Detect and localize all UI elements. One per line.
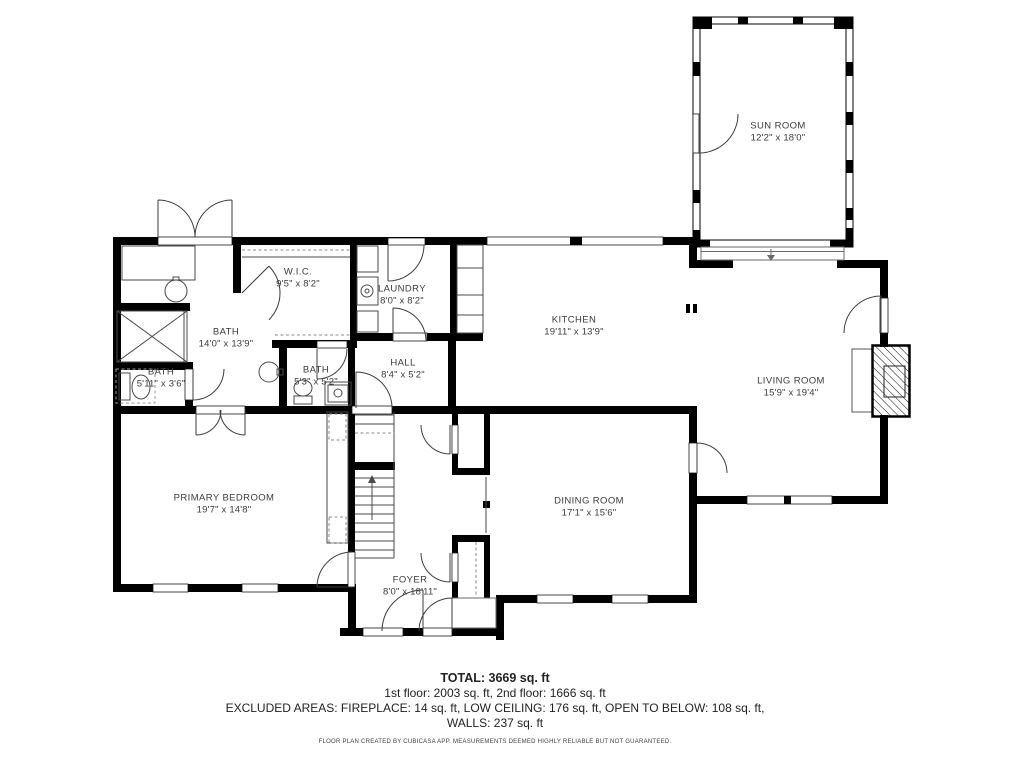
room-label-hall: HALL 8'4" x 5'2" bbox=[381, 358, 425, 381]
entry-stoop bbox=[452, 598, 496, 628]
room-label-small-bath: BATH 5'11" x 3'6" bbox=[137, 367, 186, 390]
room-label-dining-room: DINING ROOM 17'1" x 15'6" bbox=[554, 496, 624, 519]
laundry-cabinet bbox=[357, 311, 378, 332]
area-summary: TOTAL: 3669 sq. ft 1st floor: 2003 sq. f… bbox=[0, 671, 990, 745]
vanity-counter bbox=[122, 246, 195, 280]
stairs bbox=[355, 412, 394, 558]
foyer-closet1-door-arc bbox=[421, 425, 450, 454]
walls-area: WALLS: 237 sq. ft bbox=[0, 716, 990, 731]
room-label-living-room: LIVING ROOM 15'9" x 19'4" bbox=[757, 376, 825, 399]
room-label-sun-room: SUN ROOM 12'2" x 18'0" bbox=[750, 121, 805, 144]
room-label-wic: W.I.C. 9'5" x 8'2" bbox=[276, 267, 320, 290]
bedroom-door-arc bbox=[317, 552, 352, 587]
room-label-laundry: LAUNDRY 8'0" x 8'2" bbox=[378, 284, 426, 307]
sink-icon bbox=[165, 280, 187, 302]
bedroom-closet bbox=[327, 412, 348, 543]
floor-plan-page: SUN ROOM 12'2" x 18'0" W.I.C. 9'5" x 8'2… bbox=[0, 0, 1024, 768]
room-label-primary-bedroom: PRIMARY BEDROOM 19'7" x 14'8" bbox=[174, 493, 275, 516]
dining-door-arc bbox=[697, 443, 727, 473]
disclaimer: FLOOR PLAN CREATED BY CUBICASA APP. MEAS… bbox=[0, 739, 990, 745]
room-label-primary-bath: BATH 14'0" x 13'9" bbox=[199, 327, 254, 350]
patio-french-door-left bbox=[158, 200, 195, 237]
window-mullions bbox=[483, 237, 791, 508]
laundry-door-arc bbox=[388, 245, 424, 281]
laundry-cabinet bbox=[357, 246, 378, 272]
kitchen-cabinets bbox=[457, 245, 483, 333]
room-label-kitchen: KITCHEN 19'11" x 13'9" bbox=[544, 315, 603, 338]
total-area: TOTAL: 3669 sq. ft bbox=[0, 671, 990, 686]
washer-icon bbox=[357, 277, 378, 305]
walls bbox=[113, 237, 888, 640]
patio-french-door-right bbox=[195, 200, 232, 237]
fireplace bbox=[852, 346, 910, 417]
sink-icon bbox=[259, 362, 279, 382]
fixtures bbox=[116, 245, 844, 628]
living-exterior-door-arc bbox=[844, 296, 881, 333]
doors bbox=[158, 114, 881, 631]
shower bbox=[117, 311, 187, 362]
sunroom-door-arc bbox=[699, 114, 738, 153]
small-bath-door-arc bbox=[193, 369, 224, 400]
floor-areas: 1st floor: 2003 sq. ft, 2nd floor: 1666 … bbox=[0, 686, 990, 701]
room-label-foyer: FOYER 8'0" x 18'11" bbox=[383, 575, 437, 598]
room-label-middle-bath: BATH 5'3" x 5'2" bbox=[294, 365, 338, 388]
hearth bbox=[852, 349, 873, 412]
excluded-areas: EXCLUDED AREAS: FIREPLACE: 14 sq. ft, LO… bbox=[0, 701, 990, 716]
wic-door-arc bbox=[242, 266, 280, 320]
front-door-right-arc bbox=[419, 598, 452, 631]
